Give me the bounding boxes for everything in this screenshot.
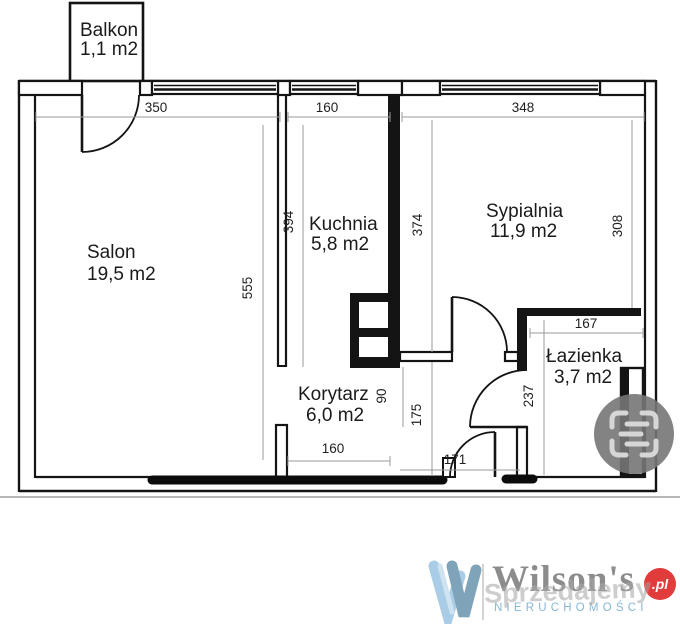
logo-w-mark: [426, 558, 484, 624]
dim-corridor-bottom: 160: [322, 441, 345, 456]
dimension-labels: 350 160 348 555 394 374 308 167 237 90 1…: [145, 100, 625, 467]
agency-logo: Wilson's .pl NIERUCHOMOŚCI Sprzedajemy: [420, 556, 676, 626]
window-kitchen: [290, 81, 358, 94]
label-korytarz-area: 6,0 m2: [306, 405, 364, 426]
dim-bedroom-right: 308: [610, 215, 625, 238]
label-balkon: Balkon: [80, 20, 138, 41]
label-korytarz: Korytarz: [298, 384, 369, 405]
label-salon-area: 19,5 m2: [87, 264, 156, 285]
window-salon: [152, 81, 278, 94]
doors: [82, 95, 527, 477]
dim-bath-width: 167: [575, 316, 598, 331]
outer-walls: [0, 80, 680, 497]
dim-opening: 90: [374, 388, 389, 403]
dim-top-salon: 350: [145, 100, 168, 115]
label-balkon-area: 1,1 m2: [80, 39, 138, 60]
dim-top-kitchen: 160: [316, 100, 339, 115]
label-kuchnia-area: 5,8 m2: [311, 234, 369, 255]
dim-bedroom-left: 374: [410, 213, 425, 236]
floorplan-svg: 350 160 348 555 394 374 308 167 237 90 1…: [0, 0, 680, 631]
label-sypialnia-area: 11,9 m2: [490, 221, 557, 242]
wall-bedroom-bottom: [400, 352, 518, 361]
dim-corridor-right: 175: [409, 404, 424, 427]
wall-salon-kitchen: [276, 95, 287, 477]
dim-bath-height: 237: [521, 385, 536, 408]
scan-frame-icon: [594, 394, 674, 474]
dim-top-bedroom: 348: [512, 100, 535, 115]
dim-entrance-bottom: 171: [444, 452, 467, 467]
bottom-thick-wall: [152, 479, 533, 480]
dim-kitchen-height: 394: [281, 210, 296, 233]
sprzedajemy-watermark: Sprzedajemy: [484, 573, 652, 610]
label-sypialnia: Sypialnia: [486, 201, 564, 222]
label-kuchnia: Kuchnia: [309, 214, 378, 235]
label-lazienka-area: 3,7 m2: [554, 367, 612, 388]
window-bedroom: [440, 81, 600, 94]
label-lazienka: Łazienka: [546, 346, 622, 367]
floorplan-image: 350 160 348 555 394 374 308 167 237 90 1…: [0, 0, 680, 631]
label-salon: Salon: [87, 242, 136, 263]
dim-salon-height: 555: [240, 277, 255, 300]
